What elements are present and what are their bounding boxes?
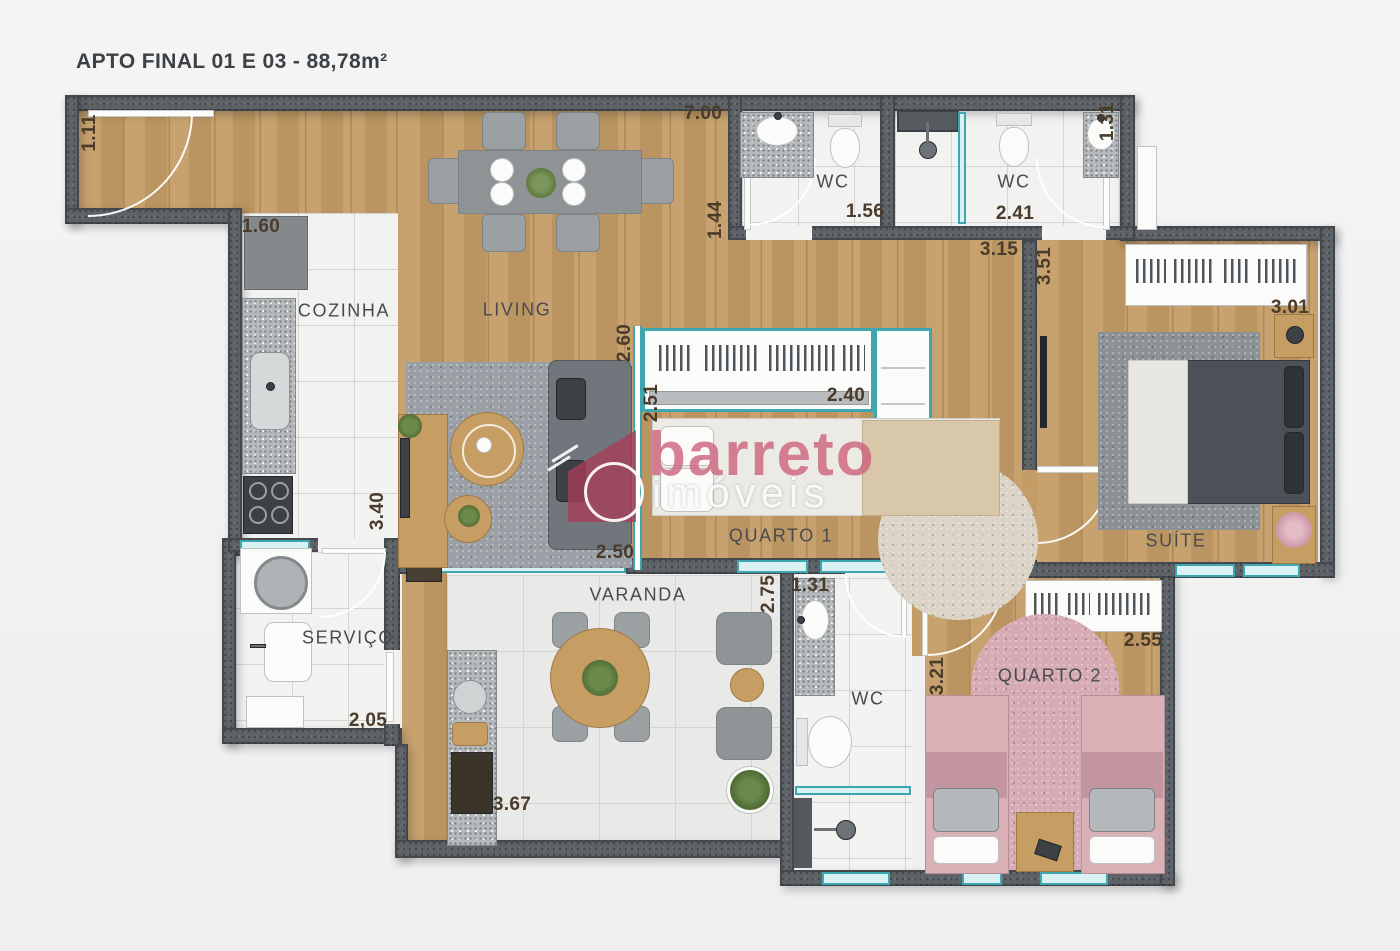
hangers-icon — [1224, 259, 1250, 283]
dining-chair — [556, 112, 600, 150]
bed-pillow-white — [1089, 836, 1155, 864]
suite-tv-panel — [1040, 336, 1047, 428]
plate — [562, 182, 586, 206]
dimension-label: 1.11 — [79, 114, 101, 151]
wall — [1120, 95, 1135, 240]
lounge-chair — [716, 707, 772, 760]
dimension-label: 2.75 — [758, 575, 780, 613]
suite-pillow — [1284, 432, 1304, 494]
wc3-toilet-bowl — [808, 716, 852, 768]
dimension-label: 7.00 — [684, 103, 722, 125]
hangers-icon — [843, 345, 865, 371]
bbq-sink — [453, 680, 487, 714]
watermark-subtitle: imóveis — [652, 472, 829, 514]
wc3-faucet — [797, 616, 805, 624]
table-plant — [458, 505, 480, 527]
hangers-icon — [1034, 593, 1060, 615]
varanda-plant — [730, 770, 770, 810]
kitchen-faucet — [266, 382, 275, 391]
servico-cabinet — [246, 696, 304, 728]
suite-flowers — [1276, 512, 1312, 548]
dimension-label: 2.41 — [996, 203, 1034, 225]
quarto1-window-a — [737, 560, 808, 573]
room-label-wc1: WC — [816, 172, 849, 193]
door-opening-wc1 — [746, 226, 812, 240]
wc3-shower-head — [836, 820, 856, 840]
charcoal-grill — [451, 752, 493, 814]
wall — [222, 538, 236, 744]
dimension-label: 1.31 — [791, 575, 829, 597]
wall — [228, 208, 242, 556]
wc3-shower-niche — [794, 798, 812, 868]
bed-pillow-gray — [1089, 788, 1155, 832]
room-label-varanda: VARANDA — [590, 585, 687, 606]
wall — [1320, 226, 1335, 576]
room-label-wc2: WC — [997, 172, 1030, 193]
floor-varanda-deck — [402, 552, 447, 845]
cabinet-shelf — [881, 367, 925, 369]
wc3-shower-glass — [795, 786, 911, 795]
bed-pillow-gray — [933, 788, 999, 832]
dimension-label: 2.55 — [1124, 630, 1162, 652]
cutting-board — [452, 722, 488, 746]
dimension-label: 1.31 — [1097, 103, 1119, 141]
door-opening-wc2 — [1042, 226, 1106, 240]
dimension-label: 3.21 — [927, 657, 949, 695]
nightstand-lamp — [1286, 326, 1304, 344]
duct-niche — [1137, 146, 1157, 230]
wc2-toilet-bowl — [999, 127, 1029, 167]
dimension-label: 1.44 — [705, 201, 727, 239]
hangers-icon — [1258, 259, 1298, 283]
room-label-wc3: WC — [851, 689, 884, 710]
hangers-icon — [1068, 593, 1090, 615]
stove-burner — [249, 506, 267, 524]
plan-title: APTO FINAL 01 E 03 - 88,78m² — [76, 50, 388, 74]
wall — [65, 95, 1135, 111]
dimension-label: 3.01 — [1271, 297, 1309, 319]
stove-burner — [249, 482, 267, 500]
bed-pillow-white — [933, 836, 999, 864]
wc1-sink — [756, 116, 798, 146]
sofa-cushion — [556, 378, 586, 420]
stove-burner — [271, 506, 289, 524]
dimension-label: 2.51 — [641, 384, 663, 422]
wc2-toilet-tank — [996, 113, 1032, 126]
room-label-quarto1: QUARTO 1 — [729, 526, 833, 547]
dining-chair — [556, 214, 600, 252]
dining-chair — [482, 214, 526, 252]
tv-panel — [400, 438, 410, 518]
room-label-quarto2: QUARTO 2 — [998, 666, 1102, 687]
wc3-window — [822, 872, 890, 885]
wc2-shower-glass — [958, 112, 966, 224]
suite-bed-sheet — [1128, 360, 1188, 504]
dimension-label: 3.67 — [493, 794, 531, 816]
wall — [65, 95, 79, 224]
washer-drum — [254, 556, 308, 610]
floor-plan-image: APTO FINAL 01 E 03 - 88,78m² — [0, 0, 1400, 951]
lounge-side-table — [730, 668, 764, 702]
dimension-label: 3.40 — [367, 492, 389, 530]
wc1-toilet-tank — [828, 114, 862, 127]
dimension-label: 1.56 — [846, 201, 884, 223]
plate — [490, 182, 514, 206]
wall — [780, 570, 794, 872]
room-label-cozinha: COZINHA — [298, 301, 390, 322]
door-leaf-servico-varanda — [386, 652, 394, 722]
plate — [490, 158, 514, 182]
dimension-label: 2.50 — [596, 542, 634, 564]
hangers-icon — [769, 345, 835, 371]
room-label-suite: SUÍTE — [1145, 531, 1206, 552]
tank-faucet — [250, 644, 266, 648]
cabinet-shelf — [881, 403, 925, 405]
wc1-toilet-bowl — [830, 128, 860, 168]
suite-window-b — [1243, 564, 1300, 577]
sideboard-plant — [398, 414, 422, 438]
suite-window-a — [1175, 564, 1235, 577]
suite-pillow — [1284, 366, 1304, 428]
hangers-icon — [1174, 259, 1214, 283]
coffee-cup — [476, 437, 492, 453]
quarto1-blanket — [862, 420, 1000, 516]
dining-chair — [638, 158, 674, 204]
room-label-servico: SERVIÇO — [302, 628, 394, 649]
dimension-label: 2.60 — [614, 324, 636, 362]
dimension-label: 2,05 — [349, 710, 387, 732]
table-flowers — [526, 168, 556, 198]
dimension-label: 2.40 — [827, 385, 865, 407]
dimension-label: 1.60 — [242, 216, 280, 238]
watermark-logo-ring — [584, 462, 644, 522]
wc3-sink — [801, 600, 829, 640]
hangers-icon — [1098, 593, 1152, 615]
dimension-label: 3.15 — [980, 239, 1018, 261]
plate — [562, 158, 586, 182]
hangers-icon — [705, 345, 757, 371]
room-label-living: LIVING — [483, 300, 552, 321]
wc3-toilet-tank — [796, 718, 808, 766]
wc2-shower-arm — [926, 122, 929, 144]
kitchen-sink — [250, 352, 290, 430]
stove-burner — [271, 482, 289, 500]
dining-chair — [482, 112, 526, 150]
hangers-icon — [659, 345, 693, 371]
lounge-chair — [716, 612, 772, 665]
wc1-faucet — [774, 112, 782, 120]
varanda-centerpiece — [582, 660, 618, 696]
hangers-icon — [1136, 259, 1166, 283]
dimension-label: 3.51 — [1034, 247, 1056, 285]
